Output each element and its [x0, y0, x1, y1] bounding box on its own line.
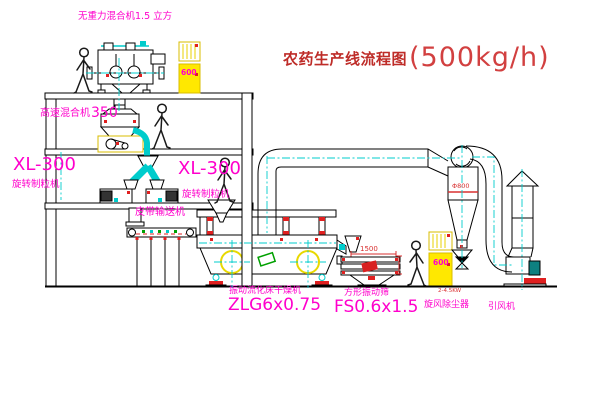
worker-figure-4 [408, 241, 426, 286]
label-granulator-right-model: XL-300 [178, 160, 241, 178]
page-title: 农药生产线流程图 (500kg/h) [283, 42, 550, 73]
cabinet-right-display: 600 [433, 259, 449, 267]
label-cyclone: 旋风除尘器 [424, 301, 469, 310]
granulator-right-drawing [146, 180, 178, 203]
granulator-left-drawing [100, 180, 138, 203]
belt-conveyor-drawing [127, 228, 196, 286]
note-power: 2-4.5KW [438, 289, 461, 295]
title-chinese: 农药生产线流程图 [283, 48, 407, 73]
label-granulator-left-name: 旋转制粒机 [12, 180, 60, 190]
cabinet-top-display: 600 [181, 69, 197, 77]
label-gravity-mixer: 无重力混合机1.5 立方 [78, 12, 172, 22]
dim-cyclone-diameter: Φ800 [452, 183, 470, 190]
high-speed-mixer-name: 高速混合机 [40, 109, 90, 120]
vibrating-screen-drawing [337, 236, 402, 287]
gravity-mixer-drawing [87, 41, 165, 93]
label-high-speed-mixer: 高速混合机 350 [40, 106, 118, 120]
label-dryer-model: ZLG6x0.75 [228, 297, 321, 314]
label-belt-conveyor: 皮带输送机 [135, 208, 185, 218]
building-column-right [242, 93, 252, 286]
title-capacity: (500kg/h) [409, 42, 550, 73]
dim-screen-length: 1500 [360, 246, 378, 253]
label-granulator-left-model: XL-300 [13, 156, 76, 174]
flow-diagram-screen: 农药生产线流程图 (500kg/h) 无重力混合机1.5 立方 高速混合机 35… [0, 0, 600, 403]
label-screen-model: FS0.6x1.5 [334, 299, 418, 316]
fluid-bed-dryer-drawing [197, 200, 346, 287]
worker-figure-2 [152, 104, 170, 149]
exhaust-stack [507, 171, 538, 257]
label-fan: 引风机 [488, 303, 515, 312]
label-granulator-right-name: 旋转制粒机 [182, 190, 230, 200]
cyclone-drawing [448, 146, 478, 269]
high-speed-mixer-model: 350 [91, 106, 118, 120]
